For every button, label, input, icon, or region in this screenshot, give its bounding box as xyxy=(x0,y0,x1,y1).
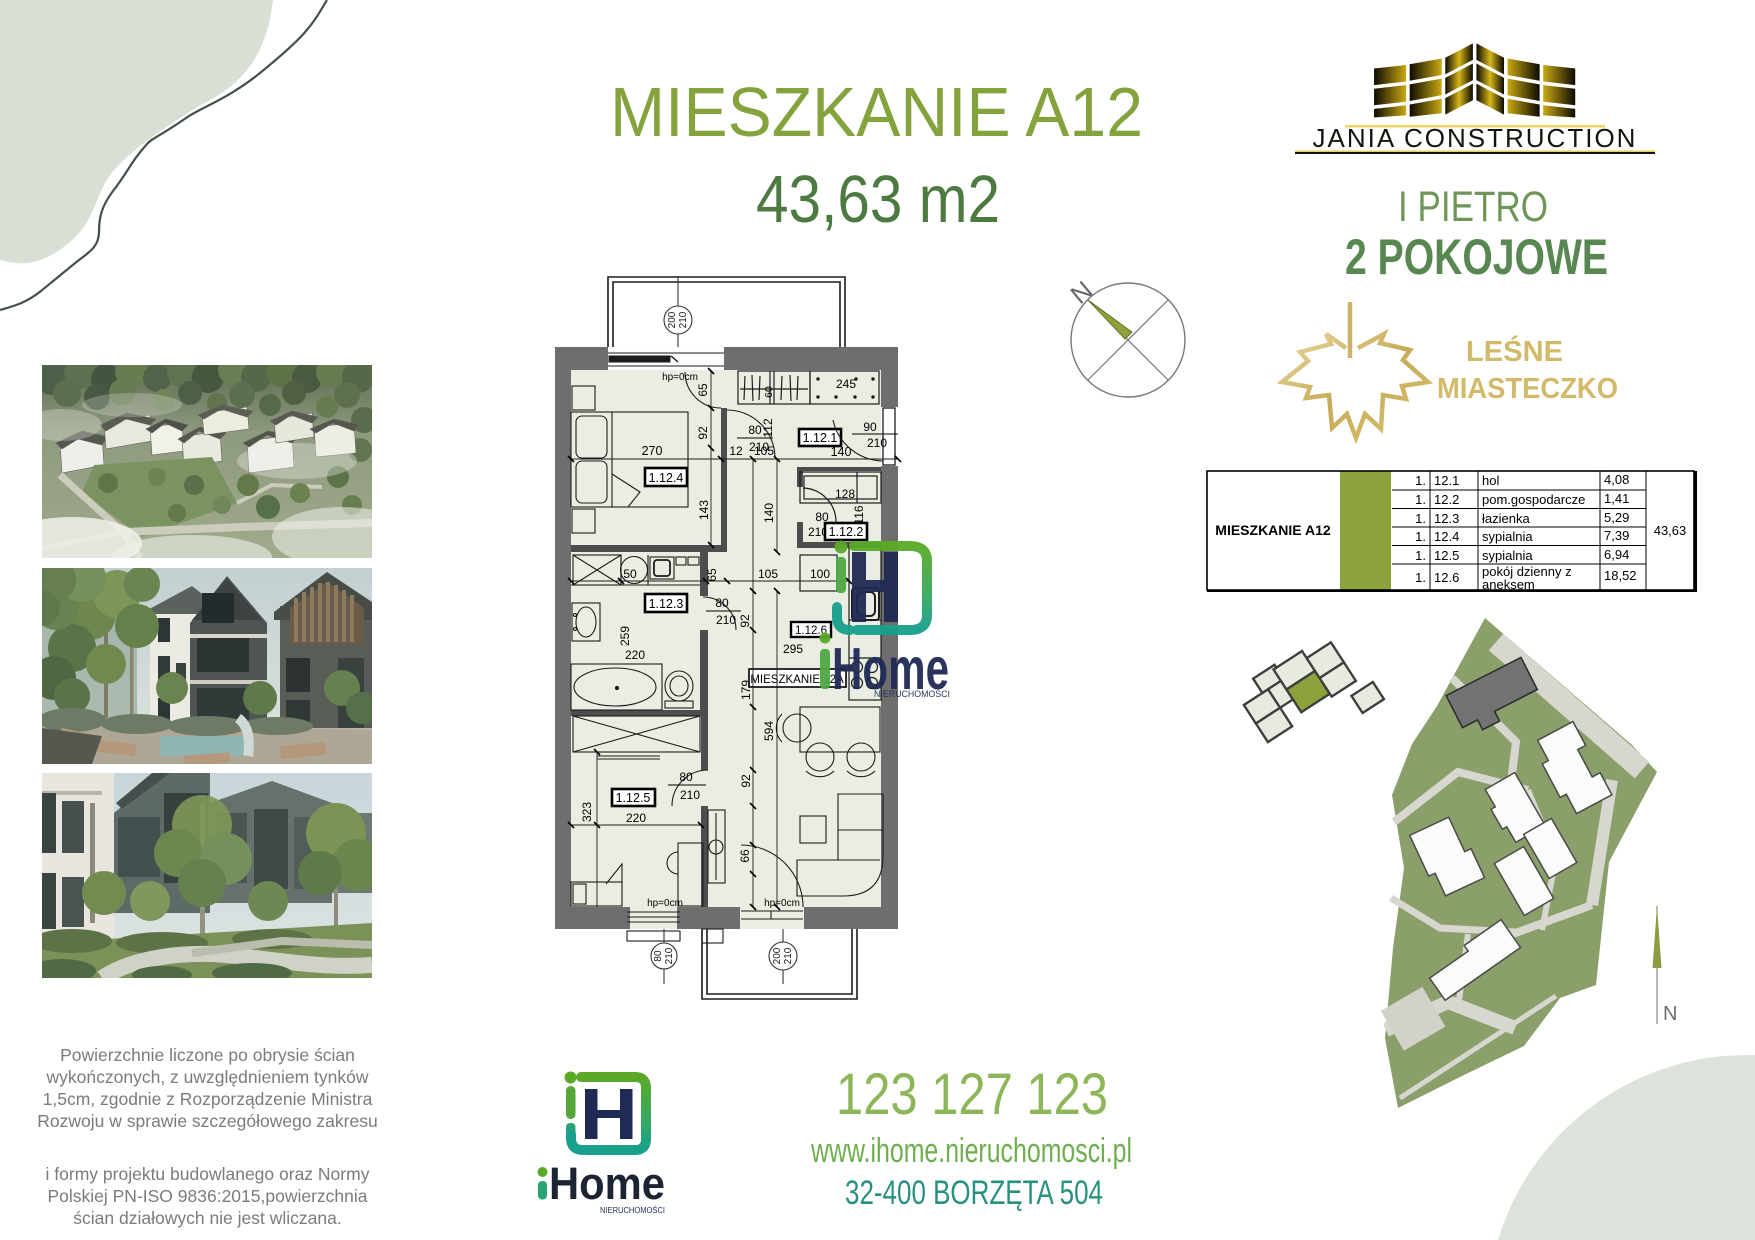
svg-text:JANIA CONSTRUCTION: JANIA CONSTRUCTION xyxy=(1313,123,1638,153)
svg-text:128: 128 xyxy=(835,487,855,501)
svg-text:259: 259 xyxy=(618,626,632,646)
svg-text:112: 112 xyxy=(761,418,775,437)
svg-text:1.: 1. xyxy=(1415,492,1426,507)
svg-text:hol: hol xyxy=(1482,473,1499,488)
svg-text:323: 323 xyxy=(580,802,594,822)
svg-text:80: 80 xyxy=(748,423,762,437)
svg-text:210: 210 xyxy=(678,311,689,328)
svg-text:12.3: 12.3 xyxy=(1434,511,1459,526)
svg-text:140: 140 xyxy=(762,503,776,523)
svg-text:210: 210 xyxy=(867,436,887,450)
svg-text:7,39: 7,39 xyxy=(1604,528,1629,543)
svg-text:1.12.2: 1.12.2 xyxy=(829,525,864,539)
svg-text:270: 270 xyxy=(642,444,663,458)
svg-text:50: 50 xyxy=(623,567,637,581)
svg-text:1.: 1. xyxy=(1415,548,1426,563)
svg-text:90: 90 xyxy=(863,420,877,434)
svg-text:sypialnia: sypialnia xyxy=(1482,548,1533,563)
svg-text:12.2: 12.2 xyxy=(1434,492,1459,507)
svg-text:92: 92 xyxy=(739,774,753,788)
svg-text:12.5: 12.5 xyxy=(1434,548,1459,563)
svg-text:220: 220 xyxy=(626,811,646,825)
svg-text:123 127 123: 123 127 123 xyxy=(836,1062,1108,1127)
svg-text:1.: 1. xyxy=(1415,511,1426,526)
svg-text:43,63: 43,63 xyxy=(1654,523,1687,538)
svg-text:12.4: 12.4 xyxy=(1434,529,1459,544)
svg-text:100: 100 xyxy=(810,567,830,581)
svg-text:80: 80 xyxy=(715,596,729,610)
svg-text:N: N xyxy=(1663,1003,1677,1025)
svg-text:43,63 m2: 43,63 m2 xyxy=(756,162,1000,237)
svg-text:594: 594 xyxy=(762,721,776,741)
svg-text:1.: 1. xyxy=(1415,473,1426,488)
svg-text:143: 143 xyxy=(697,500,711,520)
svg-text:1.12.4: 1.12.4 xyxy=(649,471,684,485)
svg-text:hp=0cm: hp=0cm xyxy=(764,898,800,909)
svg-text:1.: 1. xyxy=(1415,570,1426,585)
svg-text:80: 80 xyxy=(653,950,664,962)
svg-text:5,29: 5,29 xyxy=(1604,510,1629,525)
svg-text:92: 92 xyxy=(696,426,710,440)
svg-text:12.1: 12.1 xyxy=(1434,473,1459,488)
svg-text:80: 80 xyxy=(679,770,693,784)
svg-text:1,41: 1,41 xyxy=(1604,491,1629,506)
svg-text:12.6: 12.6 xyxy=(1434,570,1459,585)
svg-text:1.12.3: 1.12.3 xyxy=(649,597,684,611)
svg-text:Home: Home xyxy=(549,1158,665,1209)
svg-text:200: 200 xyxy=(667,311,678,328)
svg-text:179: 179 xyxy=(739,680,753,700)
svg-text:aneksem: aneksem xyxy=(1482,577,1535,592)
svg-text:210: 210 xyxy=(783,947,794,964)
svg-text:105: 105 xyxy=(758,567,778,581)
svg-text:sypialnia: sypialnia xyxy=(1482,529,1533,544)
svg-text:210: 210 xyxy=(680,788,700,802)
svg-text:210: 210 xyxy=(716,613,736,627)
svg-text:105: 105 xyxy=(754,444,774,458)
svg-text:MIESZKANIE A12: MIESZKANIE A12 xyxy=(1215,522,1331,538)
svg-text:4,08: 4,08 xyxy=(1604,472,1629,487)
svg-text:I PIETRO: I PIETRO xyxy=(1398,183,1548,231)
svg-text:hp=0cm: hp=0cm xyxy=(662,372,698,383)
svg-text:6,94: 6,94 xyxy=(1604,547,1629,562)
svg-text:116: 116 xyxy=(852,505,866,524)
svg-text:NIERUCHOMOŚCI: NIERUCHOMOŚCI xyxy=(874,688,950,699)
svg-text:210: 210 xyxy=(664,947,675,964)
svg-text:NIERUCHOMOŚCI: NIERUCHOMOŚCI xyxy=(600,1206,665,1215)
svg-text:hp=0cm: hp=0cm xyxy=(647,898,683,909)
svg-text:12: 12 xyxy=(729,444,743,458)
svg-text:65: 65 xyxy=(705,568,719,582)
svg-text:66: 66 xyxy=(738,849,752,863)
svg-text:60: 60 xyxy=(763,386,775,398)
svg-text:łazienka: łazienka xyxy=(1482,511,1530,526)
svg-text:65: 65 xyxy=(696,383,710,397)
svg-text:92: 92 xyxy=(738,614,752,628)
svg-text:1.12.5: 1.12.5 xyxy=(616,791,651,805)
svg-text:32-400 BORZĘTA 504: 32-400 BORZĘTA 504 xyxy=(845,1174,1103,1212)
svg-text:1.: 1. xyxy=(1415,529,1426,544)
svg-text:pom.gospodarcze: pom.gospodarcze xyxy=(1482,492,1585,507)
svg-text:LEŚNE: LEŚNE xyxy=(1466,334,1563,368)
svg-text:295: 295 xyxy=(783,642,803,656)
svg-text:1.12.1: 1.12.1 xyxy=(803,431,838,445)
svg-text:220: 220 xyxy=(625,648,645,662)
svg-text:245: 245 xyxy=(836,377,856,391)
svg-text:MIASTECZKO: MIASTECZKO xyxy=(1437,373,1618,405)
svg-text:18,52: 18,52 xyxy=(1604,568,1637,583)
svg-text:MIESZKANIE A12: MIESZKANIE A12 xyxy=(610,73,1143,151)
svg-text:www.ihome.nieruchomosci.pl: www.ihome.nieruchomosci.pl xyxy=(810,1132,1132,1170)
svg-text:2 POKOJOWE: 2 POKOJOWE xyxy=(1345,229,1608,285)
svg-text:200: 200 xyxy=(772,947,783,964)
